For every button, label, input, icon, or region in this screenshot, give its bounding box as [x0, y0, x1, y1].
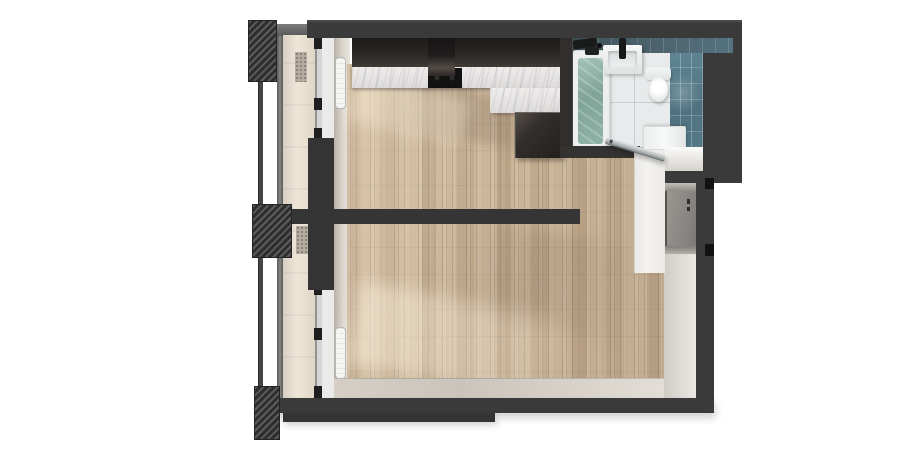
kitchen-tall-cabinet: [515, 112, 563, 158]
bathroom-door-handle: [609, 139, 613, 144]
window-frame-mark: [314, 37, 322, 49]
window-frame-mark: [314, 328, 322, 340]
entrance-door-handle: [687, 207, 690, 211]
exterior-wall-right-upper: [703, 53, 742, 183]
exterior-wall-bottom: [256, 398, 714, 413]
entry-wall-face: [664, 147, 703, 172]
hall-closet: [634, 150, 665, 273]
entry-frame-jamb: [705, 244, 714, 256]
window-frame-mark: [314, 98, 322, 110]
niche-bevel-top: [664, 183, 700, 191]
entrance-door-handle: [687, 199, 690, 204]
kitchen-counter-return: [490, 88, 560, 113]
niche-bevel-bottom: [664, 246, 700, 254]
interior-partition-wall: [256, 209, 580, 224]
window-wall-pier: [308, 138, 334, 290]
entry-frame-jamb: [705, 178, 714, 189]
basin-faucet: [619, 38, 626, 59]
balcony-grille-upper: [295, 52, 307, 82]
entrance-door: [667, 191, 698, 246]
bathtub-water: [578, 58, 603, 144]
balcony-divider-middle: [252, 204, 292, 258]
balcony-divider-top: [248, 20, 277, 82]
balcony-divider-bottom: [254, 386, 280, 440]
tub-faucet-knob: [597, 43, 602, 48]
radiator-upper: [335, 57, 346, 109]
exterior-wall-bottom-step: [283, 413, 495, 422]
exterior-wall-top: [307, 20, 742, 38]
wall-face-bottom: [334, 378, 696, 399]
wall-face-right: [664, 254, 696, 398]
bathroom-left-wall: [560, 36, 573, 152]
toilet-bowl: [649, 77, 668, 102]
kitchen-upper-cabinets: [352, 36, 565, 67]
floor-plan-render: [0, 0, 900, 450]
exterior-wall-right-lower: [696, 183, 714, 413]
window-frame-mark: [314, 386, 322, 398]
tub-faucet: [585, 47, 599, 55]
radiator-lower: [335, 327, 346, 379]
balcony-grille-lower: [296, 226, 308, 254]
exterior-wall-right: [733, 36, 742, 53]
